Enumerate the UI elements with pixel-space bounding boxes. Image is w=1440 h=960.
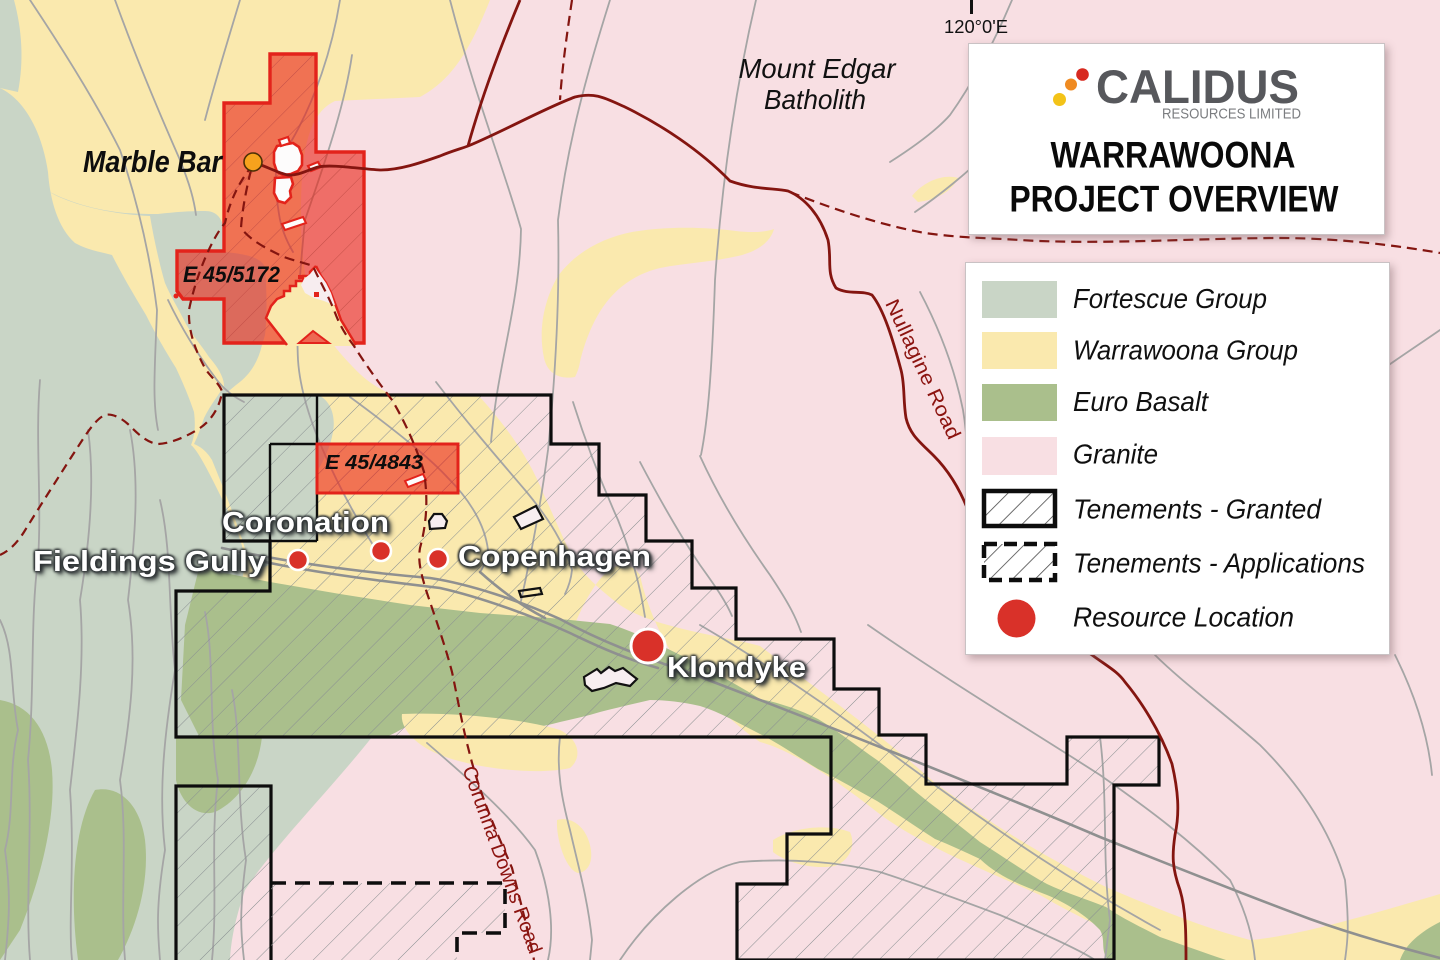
svg-text:Fortescue Group: Fortescue Group	[1073, 283, 1267, 314]
svg-text:Copenhagen: Copenhagen	[458, 541, 651, 573]
svg-text:Granite: Granite	[1073, 439, 1158, 470]
svg-text:Coronation: Coronation	[222, 507, 389, 539]
svg-text:Warrawoona Group: Warrawoona Group	[1073, 335, 1298, 366]
svg-text:PROJECT OVERVIEW: PROJECT OVERVIEW	[1010, 179, 1339, 220]
svg-text:Batholith: Batholith	[764, 84, 866, 115]
svg-text:WARRAWOONA: WARRAWOONA	[1051, 135, 1296, 176]
svg-text:Resource Location: Resource Location	[1073, 602, 1294, 633]
svg-text:RESOURCES LIMITED: RESOURCES LIMITED	[1162, 106, 1301, 123]
svg-text:Mount Edgar: Mount Edgar	[739, 53, 898, 84]
svg-text:Tenements - Granted: Tenements - Granted	[1073, 494, 1322, 525]
svg-text:E 45/5172: E 45/5172	[183, 262, 281, 287]
svg-text:Marble Bar: Marble Bar	[83, 144, 224, 179]
svg-text:120°0'E: 120°0'E	[944, 16, 1008, 37]
svg-text:Fieldings Gully: Fieldings Gully	[33, 546, 266, 578]
svg-text:Klondyke: Klondyke	[667, 652, 806, 684]
svg-text:Tenements - Applications: Tenements - Applications	[1073, 548, 1365, 579]
svg-text:Euro Basalt: Euro Basalt	[1073, 386, 1209, 417]
svg-text:E 45/4843: E 45/4843	[325, 452, 423, 474]
